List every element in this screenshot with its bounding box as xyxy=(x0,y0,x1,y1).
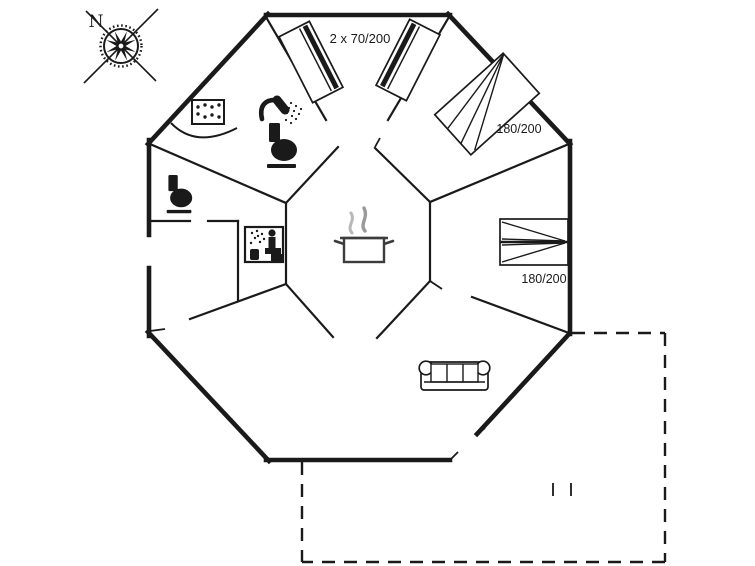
door-jamb-core-right xyxy=(430,281,442,289)
core-wall-bottom-left xyxy=(286,284,333,337)
shower-icon xyxy=(261,100,302,124)
partition-right-bedroom-living xyxy=(472,297,569,333)
toilet-icon xyxy=(167,175,193,213)
bed-size-label-right-bedroom: 180/200 xyxy=(521,272,566,286)
wall-bottom-left xyxy=(148,332,269,461)
partition-bath-toilet xyxy=(150,144,286,203)
partition-right-bedrooms xyxy=(430,144,569,202)
bed-size-label-top-bedroom: 2 x 70/200 xyxy=(330,31,391,46)
bed-size-label-upper-right-bedroom: 180/200 xyxy=(496,122,541,136)
steam-wisp xyxy=(350,213,352,233)
core-wall-bottom-right xyxy=(377,281,430,338)
floor-plan-page: N xyxy=(0,0,755,566)
double-bed-icon xyxy=(500,219,568,265)
floor-plan: N xyxy=(0,0,755,566)
cooking-pot-icon xyxy=(335,208,393,262)
door-jamb-entrance-left xyxy=(450,452,458,460)
wall-bottom-right xyxy=(477,333,570,434)
door-jamb-left xyxy=(150,329,165,331)
sauna-icon xyxy=(245,227,283,262)
double-bed-icon xyxy=(435,53,540,155)
toilet-icon xyxy=(267,123,297,168)
steam-wisp xyxy=(363,208,365,231)
door-jamb-core-top xyxy=(375,138,380,147)
sofa-icon xyxy=(419,361,490,390)
compass-north-label: N xyxy=(89,12,104,32)
core-wall-top-right xyxy=(375,148,430,202)
